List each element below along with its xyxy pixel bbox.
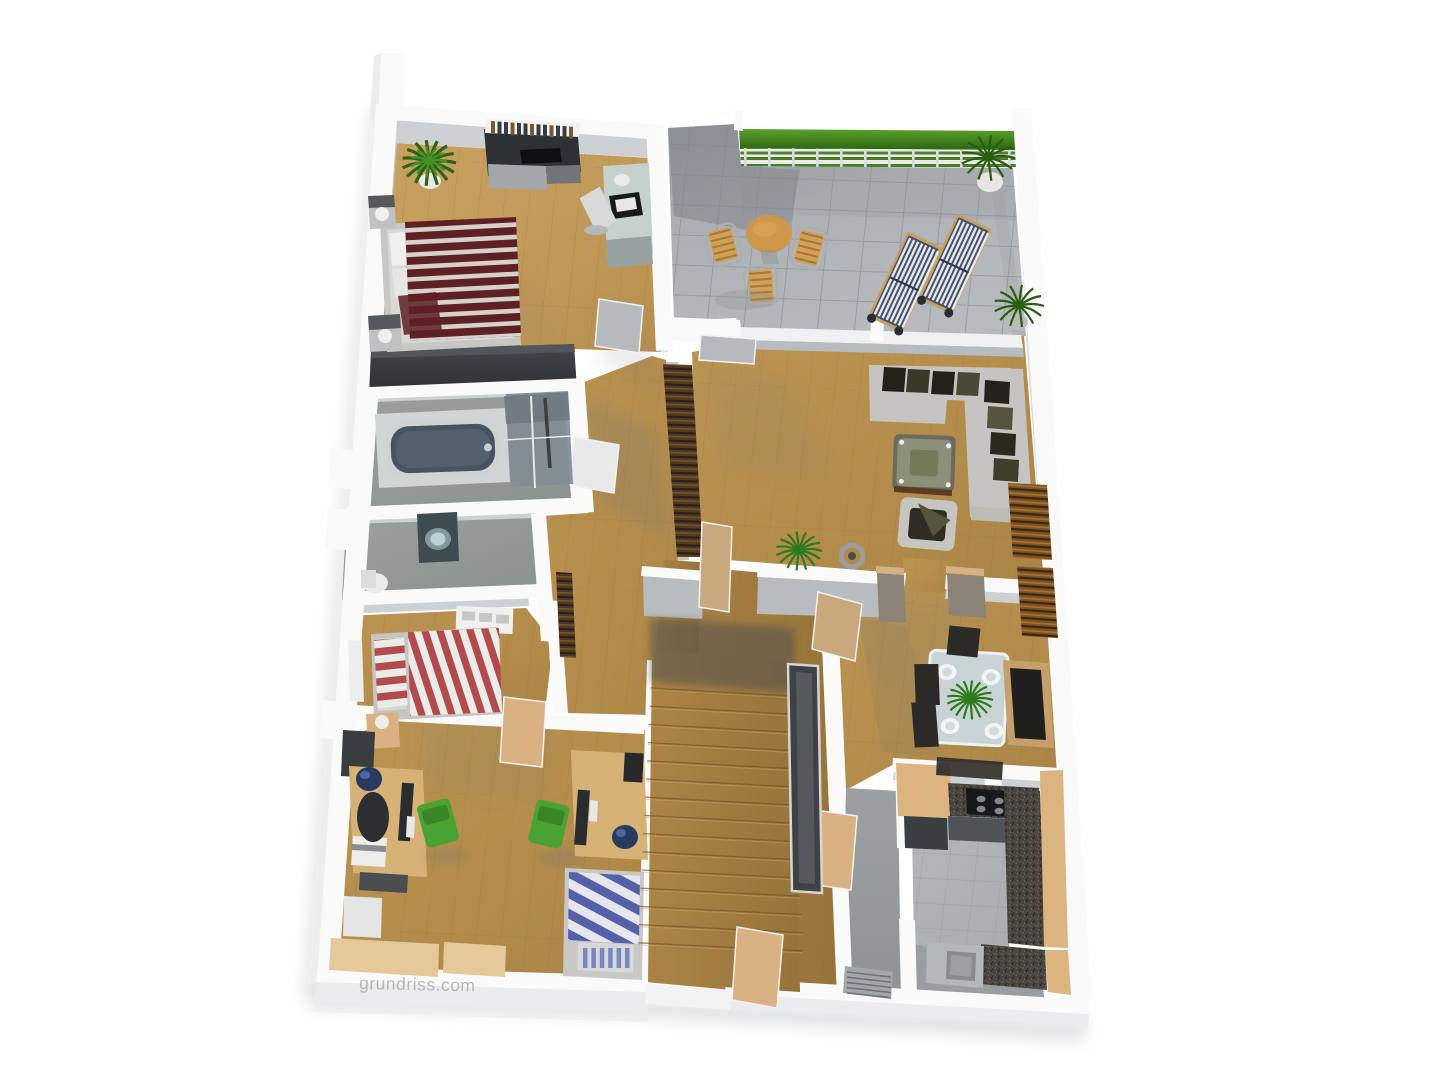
svg-text:grundriss.com: grundriss.com [359,973,476,995]
